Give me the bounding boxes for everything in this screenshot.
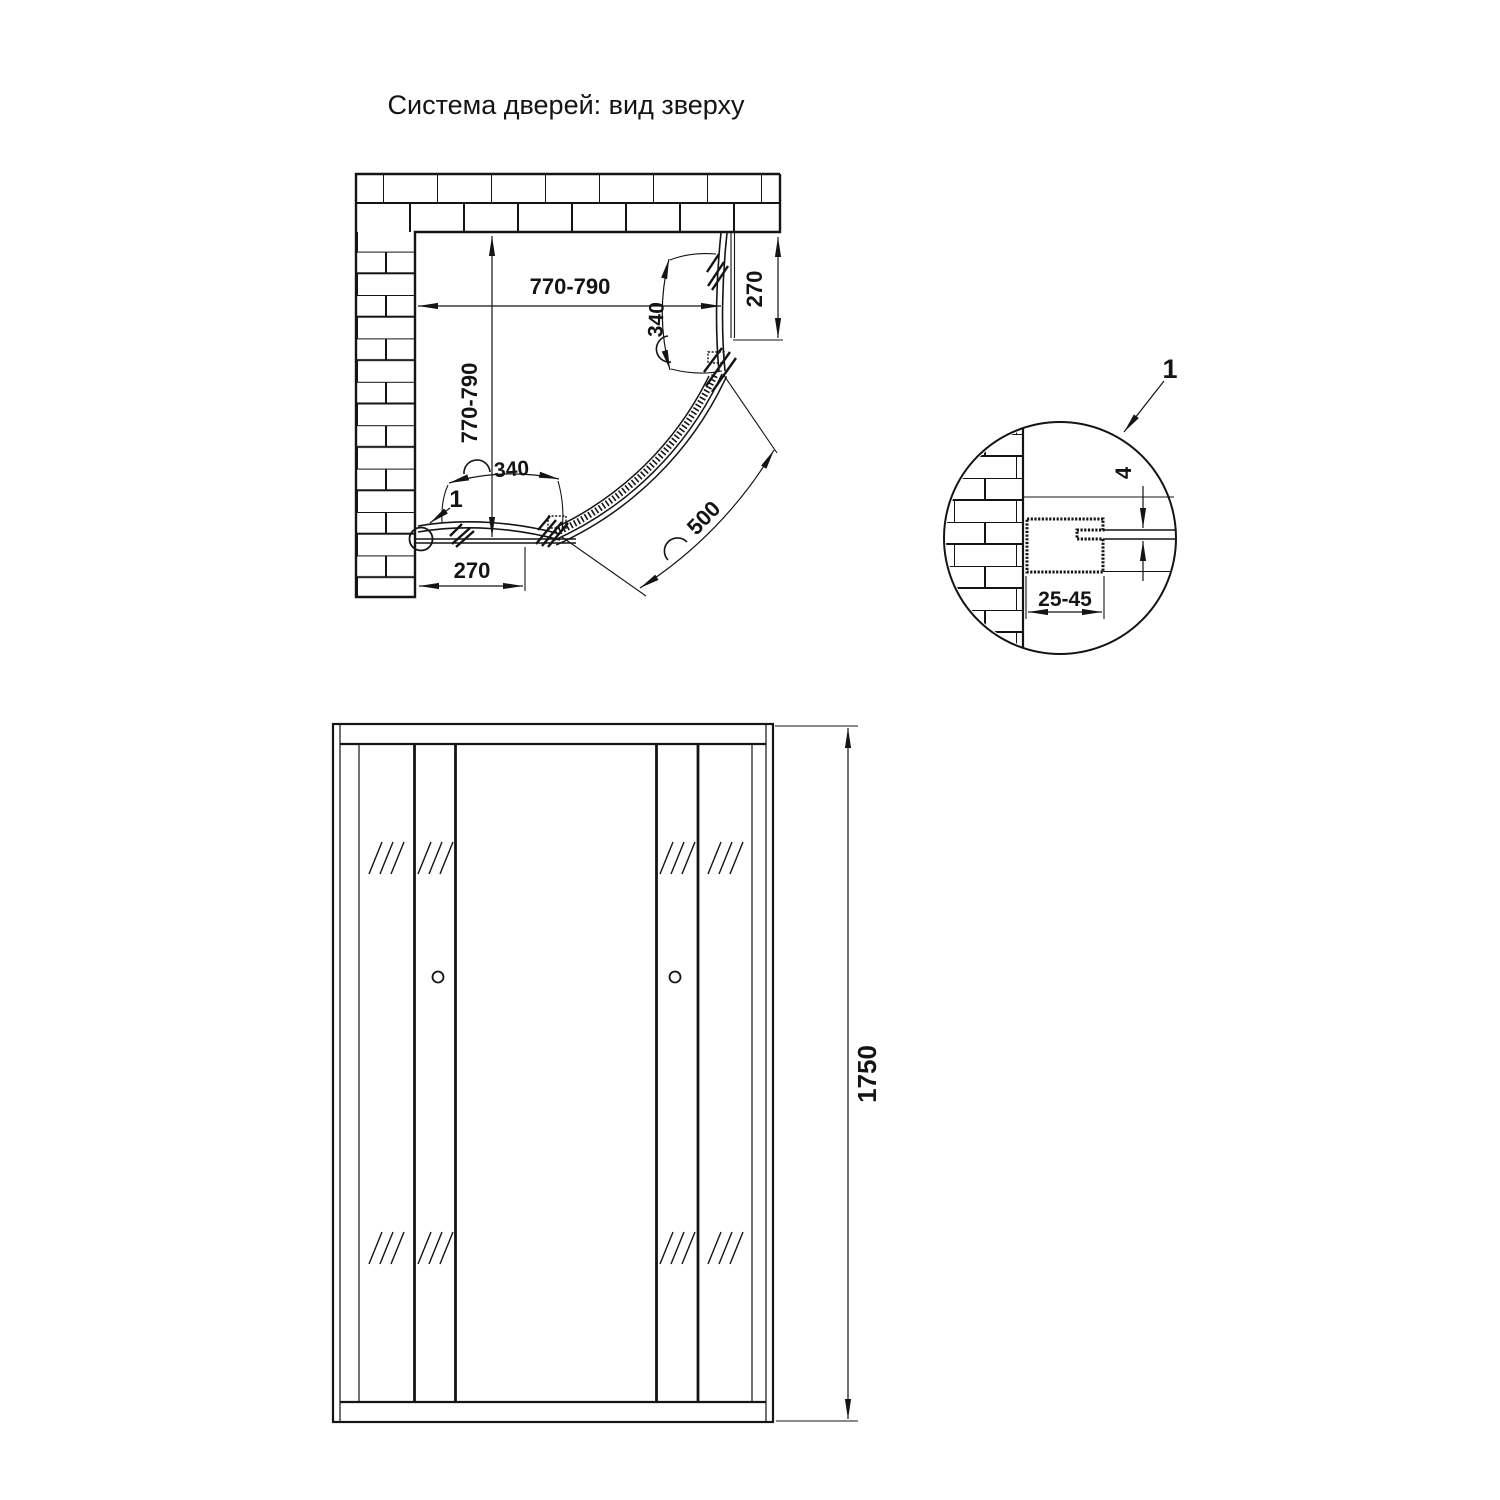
front-frame-outer — [333, 724, 773, 1422]
front-view: 1750 — [333, 724, 882, 1422]
top-wall-bricks — [356, 174, 780, 232]
glass-panel-edge — [1103, 530, 1176, 539]
dim-glass-thickness-label: 4 — [1111, 466, 1136, 479]
detail-callout: 1 — [430, 486, 463, 523]
dim-glass-thickness: 4 — [1111, 466, 1143, 581]
dim-panel-arc-bottom-label: 340 — [493, 457, 530, 482]
door-glass-hatch-band — [556, 376, 715, 534]
dim-offset-bottom-label: 270 — [454, 558, 491, 583]
dim-door-arc-label: 500 — [682, 496, 725, 540]
dim-width: 770-790 — [418, 274, 721, 306]
dim-offset-bottom: 270 — [419, 547, 525, 591]
dim-width-label: 770-790 — [530, 274, 611, 299]
arc-symbol — [464, 460, 490, 474]
dim-panel-arc-top-label: 340 — [644, 302, 669, 338]
drawing-title: Система дверей: вид зверху — [388, 90, 745, 120]
dim-door-arc: 500 — [562, 374, 777, 596]
left-wall-bricks — [356, 232, 415, 597]
detail-view-callout: 1 — [1124, 354, 1178, 432]
detail-view-label: 1 — [1162, 354, 1177, 384]
detail-callout-label: 1 — [449, 486, 462, 513]
wall-profile-section — [1027, 519, 1103, 572]
dim-offset-right-label: 270 — [742, 271, 767, 308]
dim-profile-range: 25-45 — [1026, 576, 1104, 619]
dim-height-label: 1750 — [852, 1045, 882, 1103]
dim-height: 1750 — [775, 726, 882, 1421]
technical-drawing: Система дверей: вид зверху — [0, 0, 1500, 1500]
dim-depth-label: 770-790 — [457, 363, 482, 444]
top-view-plan: 770-790 770-790 340 340 500 — [356, 174, 783, 597]
dim-profile-range-label: 25-45 — [1038, 588, 1092, 611]
detail-wall-bricks — [944, 420, 1023, 656]
drawing-page: Система дверей: вид зверху — [0, 0, 1500, 1500]
detail-view: 4 25-45 1 — [944, 354, 1178, 656]
dim-panel-arc-top: 340 — [644, 254, 722, 373]
dim-offset-right: 270 — [733, 237, 783, 340]
